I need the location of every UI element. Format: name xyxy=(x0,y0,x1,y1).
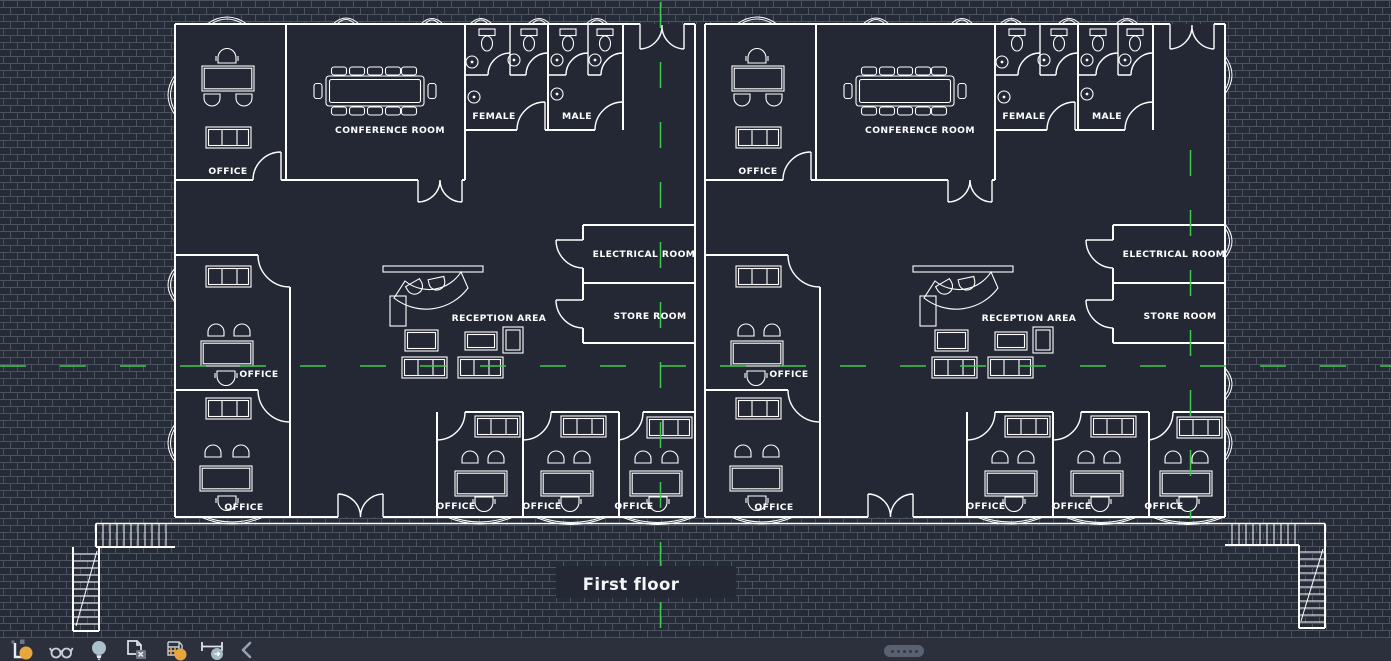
room-label-office-c2: OFFICE xyxy=(1052,501,1091,512)
room-label-store: STORE ROOM xyxy=(613,311,686,322)
cad-app-window: OFFICE CONFERENCE ROOM FEMALE MALE ELECT… xyxy=(0,0,1391,661)
room-label-electrical: ELECTRICAL ROOM xyxy=(593,249,696,260)
room-label-office-c1: OFFICE xyxy=(966,501,1005,512)
room-label-male: MALE xyxy=(562,111,592,122)
room-label-electrical: ELECTRICAL ROOM xyxy=(1123,249,1226,260)
glasses-view-icon[interactable] xyxy=(42,638,80,661)
room-label-store: STORE ROOM xyxy=(1143,311,1216,322)
room-label-office-mid: OFFICE xyxy=(239,369,278,380)
room-label-female: FEMALE xyxy=(472,111,515,122)
room-label-office-top: OFFICE xyxy=(738,166,777,177)
drag-handle[interactable] xyxy=(884,645,924,657)
room-label-office-bottom: OFFICE xyxy=(224,502,263,513)
measure-dimension-icon[interactable] xyxy=(194,638,232,661)
floor-title: First floor xyxy=(556,566,736,598)
room-label-office-top: OFFICE xyxy=(208,166,247,177)
floor-title-text: First floor xyxy=(583,575,680,594)
building-footprint xyxy=(175,24,1225,517)
room-label-office-c2: OFFICE xyxy=(522,501,561,512)
room-label-office-c1: OFFICE xyxy=(436,501,475,512)
bottom-toolbar xyxy=(0,638,1391,661)
layout-plot-icon[interactable] xyxy=(4,638,42,661)
room-label-conference: CONFERENCE ROOM xyxy=(865,125,975,136)
room-label-conference: CONFERENCE ROOM xyxy=(335,125,445,136)
lightbulb-icon[interactable] xyxy=(80,638,118,661)
room-label-reception: RECEPTION AREA xyxy=(452,313,547,324)
model-3d-icon[interactable] xyxy=(156,638,194,661)
chevron-left-icon[interactable] xyxy=(232,638,262,661)
room-label-female: FEMALE xyxy=(1002,111,1045,122)
room-label-reception: RECEPTION AREA xyxy=(982,313,1077,324)
room-label-office-bottom: OFFICE xyxy=(754,502,793,513)
room-label-male: MALE xyxy=(1092,111,1122,122)
room-label-office-c3: OFFICE xyxy=(1144,501,1183,512)
drawing-canvas[interactable]: OFFICE CONFERENCE ROOM FEMALE MALE ELECT… xyxy=(0,0,1391,661)
room-label-office-mid: OFFICE xyxy=(769,369,808,380)
room-label-office-c3: OFFICE xyxy=(614,501,653,512)
sheets-copy-icon[interactable] xyxy=(118,638,156,661)
